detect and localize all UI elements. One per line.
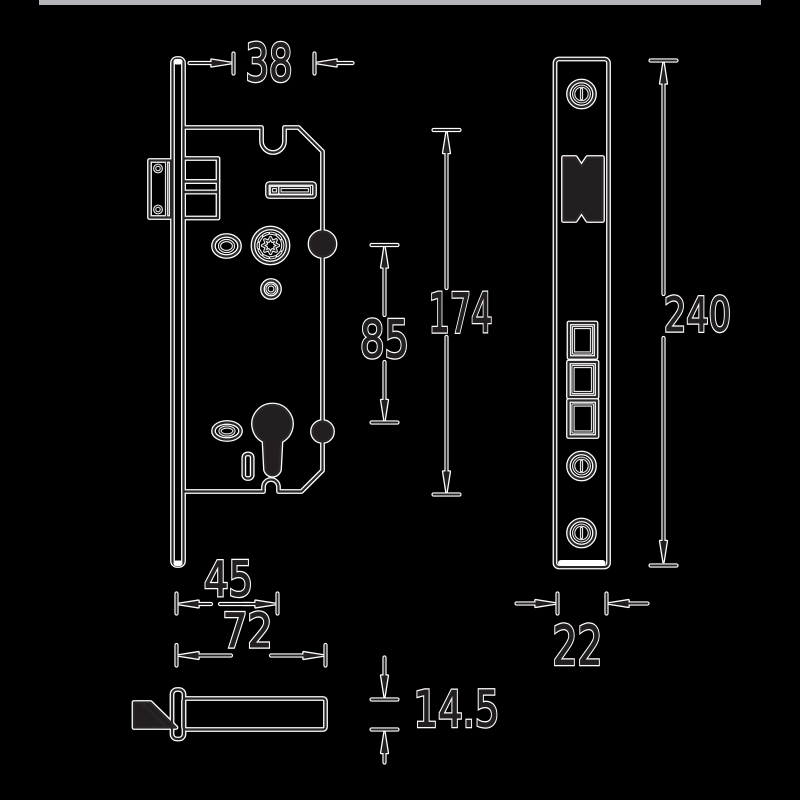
mortise-lock-diagram: 38 174 85 [0, 0, 800, 800]
ink-pass [134, 34, 731, 763]
front-plate-bottom-cap [558, 560, 606, 566]
top-divider-bar [39, 0, 761, 5]
faceplate-bottom-cap [174, 561, 183, 567]
drawing-canvas: 38 174 85 [0, 0, 800, 800]
faceplate-top-cap [174, 59, 183, 65]
